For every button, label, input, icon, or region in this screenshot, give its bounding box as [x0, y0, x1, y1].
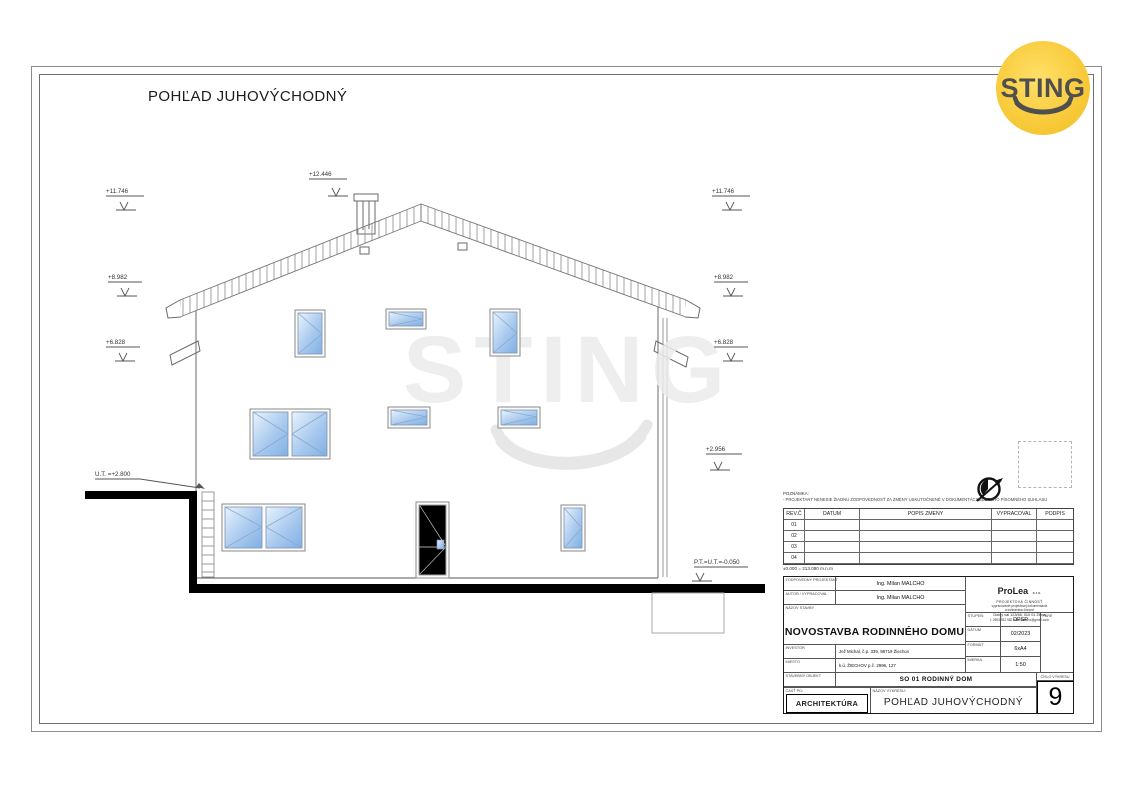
sting-logo: STING	[996, 41, 1090, 135]
rev-cell	[992, 542, 1037, 553]
object-value-cell: SO 01 RODINNÝ DOM	[836, 673, 1037, 687]
number-label: ČÍSLO VÝKRESU	[1041, 675, 1070, 679]
svg-text:+11.746: +11.746	[712, 188, 735, 195]
scale-label: MIERKA	[968, 658, 983, 662]
investor-value-cell: Jež Michal, č.p. 339, 98719 Žiechov	[836, 645, 966, 659]
revision-table: REV.Č DATUM POPIS ZMENY VYPRACOVAL PODPI…	[783, 508, 1074, 565]
stage-value: DPSP	[1001, 613, 1040, 626]
note-block: POZNÁMKA: - PROJEKTANT NENESIE ŽIADNU ZO…	[783, 491, 1075, 502]
rev-cell	[860, 520, 992, 531]
company-name-line: ProLea s.r.o.	[966, 580, 1073, 600]
rev-row-no: 02	[784, 531, 805, 542]
rev-cell	[805, 531, 860, 542]
note-text: - PROJEKTANT NENESIE ŽIADNU ZODPOVEDNOSŤ…	[783, 497, 1075, 502]
rev-cell	[860, 531, 992, 542]
marker-terrain-left: U.T. =+2.800	[95, 471, 205, 489]
window-attic-left	[295, 310, 325, 357]
drawing-sheet: POHĽAD JUHOVÝCHODNÝ	[0, 0, 1131, 800]
part-label: ČASŤ PD:	[786, 689, 804, 693]
window-mid-right	[498, 407, 540, 428]
rev-row-no: 04	[784, 553, 805, 564]
rev-cell	[992, 553, 1037, 564]
terrain-lower	[189, 584, 765, 593]
rev-cell	[1037, 531, 1073, 542]
number-label-cell: ČÍSLO VÝKRESU	[1037, 673, 1073, 681]
rev-cell	[992, 520, 1037, 531]
project-cell: NÁZOV STAVBY NOVOSTAVBA RODINNÉHO DOMU	[784, 605, 966, 645]
marker-left-1: +11.746	[106, 188, 144, 210]
format-value-cell: 6xA4	[1001, 642, 1041, 657]
investor-label-cell: INVESTOR	[784, 645, 836, 659]
date-value-cell: 02/2023	[1001, 627, 1041, 642]
place-label-cell: MIESTO	[784, 659, 836, 673]
stage-label: STUPEŇ:	[968, 614, 984, 618]
date-value: 02/2023	[1001, 627, 1040, 641]
svg-text:+6.828: +6.828	[106, 339, 126, 346]
rev-row-no: 03	[784, 542, 805, 553]
author-value-cell: Ing. Milan MALCHO	[836, 591, 966, 605]
marker-chimney-top: +12.446	[309, 171, 348, 196]
stamp-placeholder	[1018, 441, 1072, 488]
object-label: STAVEBNÝ OBJEKT	[786, 674, 822, 678]
company-cell: ProLea s.r.o. PROJEKTOVÁ ČINNOSŤ vypraco…	[966, 577, 1073, 613]
responsible-label: ZODPOVEDNÝ PROJEKTANT	[786, 578, 838, 582]
window-attic-right	[490, 309, 520, 356]
rev-cell	[805, 542, 860, 553]
rev-cell	[860, 553, 992, 564]
stage-value-cell: DPSP	[1001, 613, 1041, 627]
company-line2: a inžinierska činnosť	[966, 608, 1073, 612]
rev-col-header: POPIS ZMENY	[860, 509, 992, 520]
svg-text:+6.828: +6.828	[714, 339, 734, 346]
svg-text:+2.956: +2.956	[706, 446, 726, 453]
date-label-cell: DÁTUM	[966, 627, 1001, 642]
place-value-cell: k.ú. ŽIECHOV p.č. 2996, 127	[836, 659, 966, 673]
format-value: 6xA4	[1001, 642, 1040, 656]
terrain-upper-left	[85, 491, 196, 499]
place-value: k.ú. ŽIECHOV p.č. 2996, 127	[836, 659, 968, 672]
page-title: POHĽAD JUHOVÝCHODNÝ	[148, 88, 347, 105]
format-label: FORMÁT	[968, 643, 984, 647]
datum-note: ±0.000 = 213.080 m.n.m	[783, 566, 833, 571]
svg-text:U.T. =+2.800: U.T. =+2.800	[95, 471, 131, 478]
entry-door	[416, 502, 449, 578]
pare-label: PARÉ	[1043, 614, 1053, 618]
svg-text:+8.982: +8.982	[108, 274, 128, 281]
watermark-smile	[502, 436, 640, 463]
rev-cell	[1037, 553, 1073, 564]
date-label: DÁTUM	[968, 628, 982, 632]
rev-cell	[860, 542, 992, 553]
window-mid-center	[388, 407, 430, 428]
project-label: NÁZOV STAVBY	[786, 606, 815, 610]
investor-label: INVESTOR	[786, 646, 805, 650]
footing	[652, 593, 724, 633]
svg-text:+8.982: +8.982	[714, 274, 734, 281]
place-label: MIESTO	[786, 660, 801, 664]
responsible-value-cell: Ing. Milan MALCHO	[836, 577, 966, 591]
drawing-number: 9	[1049, 683, 1063, 712]
object-value: SO 01 RODINNÝ DOM	[836, 673, 1036, 686]
svg-text:P.T.=U.T.=-0.050: P.T.=U.T.=-0.050	[694, 559, 740, 566]
rev-col-header: REV.Č	[784, 509, 805, 520]
roof	[166, 204, 700, 318]
marker-left-3: +6.828	[106, 339, 140, 361]
marker-left-2: +8.982	[108, 274, 142, 296]
company-suffix: s.r.o.	[1033, 590, 1042, 595]
pare-cell: PARÉ	[1041, 613, 1073, 673]
terrain-step	[189, 491, 197, 587]
part-cell: ČASŤ PD: ARCHITEKTÚRA	[784, 687, 871, 713]
part-value: ARCHITEKTÚRA	[786, 694, 868, 713]
window-ground-right	[561, 505, 585, 551]
rev-cell	[805, 553, 860, 564]
scale-label-cell: MIERKA	[966, 657, 1001, 673]
author-label-cell: AUTOR / VYPRACOVAL	[784, 591, 836, 605]
rev-cell	[992, 531, 1037, 542]
author-value: Ing. Milan MALCHO	[836, 591, 965, 604]
marker-right-2: +8.982	[714, 274, 748, 296]
marker-right-1: +11.746	[712, 188, 750, 210]
drawing-number-box: 9	[1037, 681, 1073, 713]
watermark-text: STING	[403, 317, 733, 423]
rev-row-no: 01	[784, 520, 805, 531]
svg-text:+11.746: +11.746	[106, 188, 129, 195]
format-label-cell: FORMÁT	[966, 642, 1001, 657]
svg-text:+12.446: +12.446	[309, 171, 332, 178]
rev-col-header: PODPIS	[1037, 509, 1073, 520]
drawing-name-cell: NÁZOV VÝKRESU: POHĽAD JUHOVÝCHODNÝ	[871, 687, 1037, 713]
responsible-value: Ing. Milan MALCHO	[836, 577, 965, 590]
responsible-label-cell: ZODPOVEDNÝ PROJEKTANT	[784, 577, 836, 591]
rev-col-header: VYPRACOVAL	[992, 509, 1037, 520]
watermark: STING	[403, 317, 733, 463]
window-mid-left-double	[250, 409, 330, 459]
rev-cell	[805, 520, 860, 531]
stage-label-cell: STUPEŇ:	[966, 613, 1001, 627]
rev-col-header: DATUM	[805, 509, 860, 520]
drawing-name-label: NÁZOV VÝKRESU:	[873, 689, 906, 693]
window-ground-left-double	[222, 504, 305, 551]
title-block: ZODPOVEDNÝ PROJEKTANT Ing. Milan MALCHO …	[783, 576, 1074, 714]
scale-value-cell: 1:50	[1001, 657, 1041, 673]
rev-cell	[1037, 542, 1073, 553]
window-attic-mid	[386, 309, 426, 329]
company-name: ProLea	[998, 586, 1029, 596]
author-label: AUTOR / VYPRACOVAL	[786, 592, 828, 596]
object-label-cell: STAVEBNÝ OBJEKT	[784, 673, 836, 687]
rev-cell	[1037, 520, 1073, 531]
marker-base-right: P.T.=U.T.=-0.050	[692, 559, 748, 581]
marker-right-4: +2.956	[706, 446, 742, 470]
scale-value: 1:50	[1001, 657, 1040, 672]
investor-value: Jež Michal, č.p. 339, 98719 Žiechov	[836, 645, 968, 658]
